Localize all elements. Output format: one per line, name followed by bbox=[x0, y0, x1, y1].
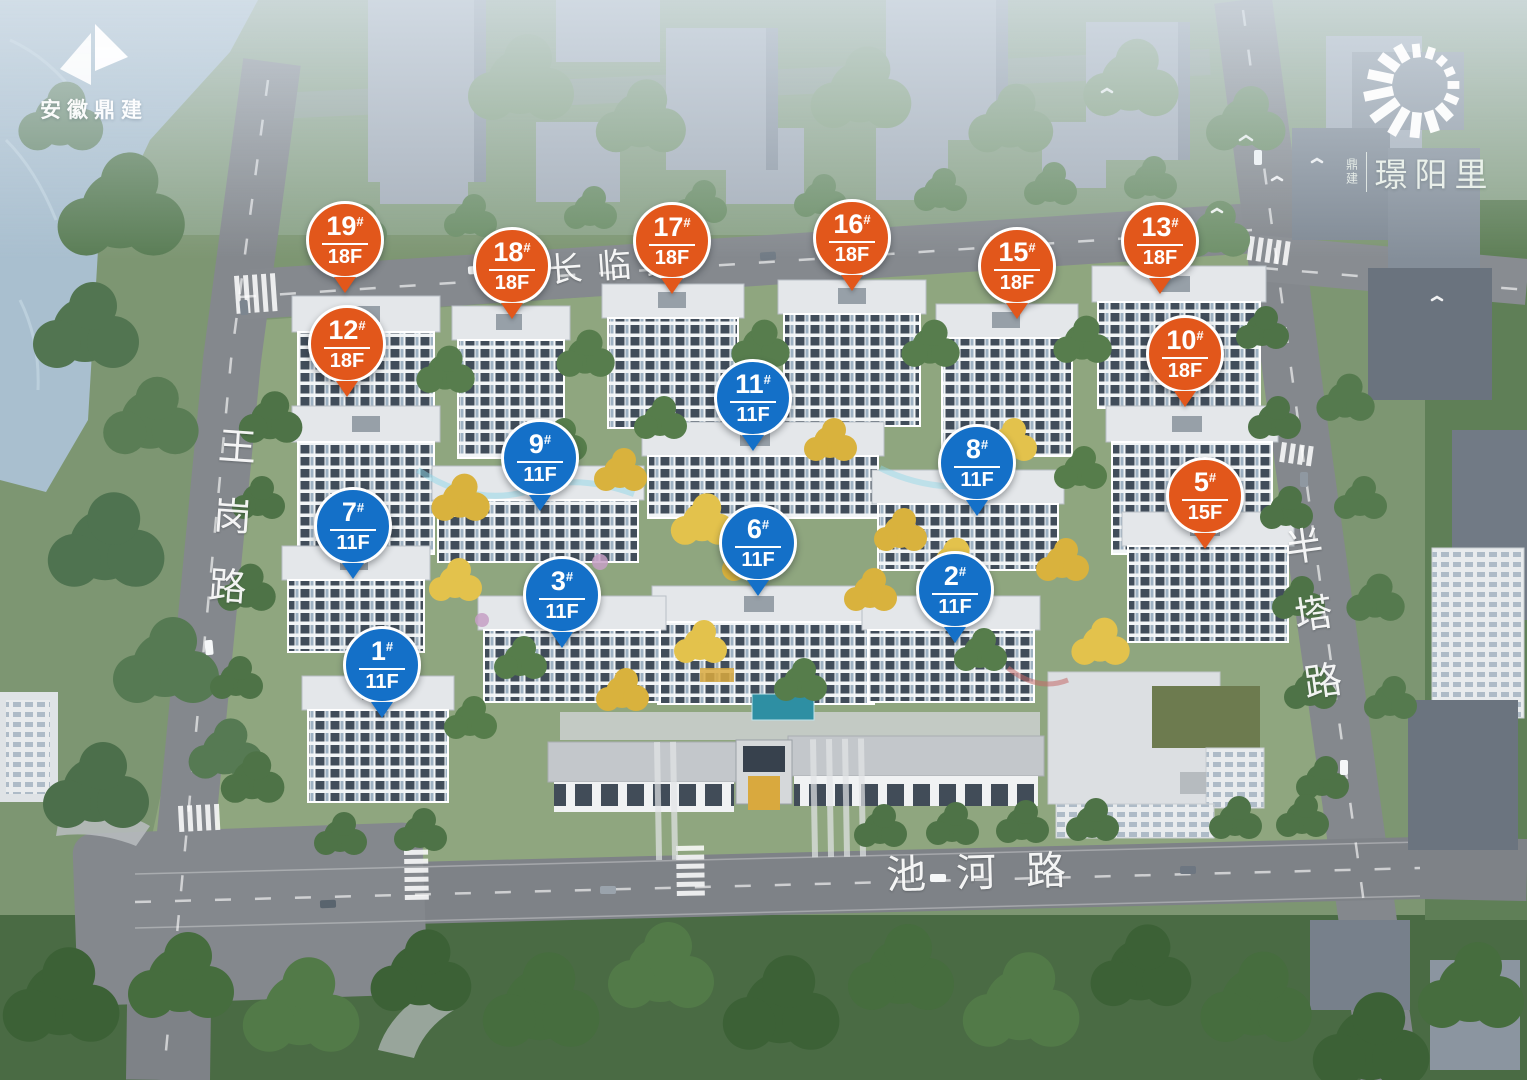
brand-divider bbox=[1366, 152, 1367, 192]
developer-logo: 安徽鼎建 bbox=[40, 24, 148, 124]
brand-logo-text: 鼎建 璟阳里 bbox=[1346, 148, 1495, 196]
developer-logo-text: 安徽鼎建 bbox=[40, 94, 148, 124]
brand-name: 璟阳里 bbox=[1375, 148, 1495, 196]
building-5 bbox=[1122, 512, 1294, 642]
building-7 bbox=[282, 546, 430, 652]
entrance-gate bbox=[736, 740, 792, 810]
developer-logo-icon bbox=[58, 24, 130, 86]
brand-logo-spiral-icon bbox=[1361, 24, 1479, 142]
master-plan-rendering: 长临路 王岗路 半塔路 池河路 安徽鼎建 鼎建 璟阳里 bbox=[0, 0, 1527, 1080]
brand-logo: 鼎建 璟阳里 bbox=[1330, 24, 1510, 196]
building-12 bbox=[292, 406, 440, 554]
building-2 bbox=[862, 596, 1040, 702]
building-1 bbox=[302, 676, 454, 802]
haze-overlay bbox=[0, 0, 1527, 260]
site-plan-scene bbox=[0, 0, 1527, 1080]
brand-prefix: 鼎建 bbox=[1346, 158, 1358, 186]
